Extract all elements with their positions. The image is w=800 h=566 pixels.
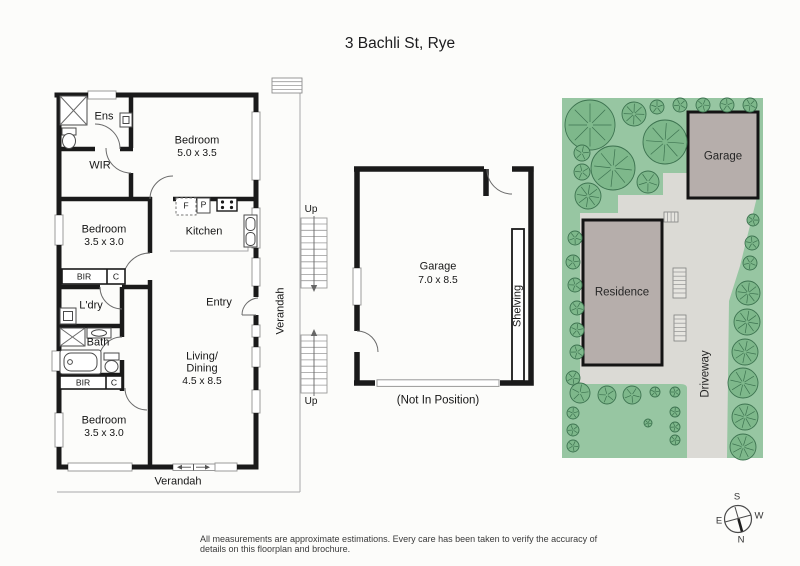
floorplan-page: 3 Bachli St, Rye [0,0,800,566]
tree-icon [570,383,590,403]
room-dims-bedroom1: 5.0 x 3.5 [177,149,217,159]
closet-label-bir1: BIR [77,272,91,281]
tree-icon [732,404,758,430]
site-label-driveway: Driveway [700,350,712,397]
room-label-bedroom3: Bedroom [82,416,127,427]
tree-icon [643,120,687,164]
tree-icon [650,100,664,114]
label-up-top: Up [305,205,318,215]
room-label-living: Living/ [186,352,218,363]
tree-icon [730,434,756,460]
tree-icon [566,255,580,269]
site-steps-2 [673,268,686,298]
tree-icon [732,339,758,365]
room-dims-bedroom2: 3.5 x 3.0 [84,238,124,248]
tree-icon [747,214,759,226]
tree-icon [570,345,584,359]
stairs-upper [301,216,327,292]
tree-icon [650,387,660,397]
label-shelving: Shelving [513,285,524,327]
tree-icon [570,301,584,315]
tree-icon [673,98,687,112]
tree-icon [567,440,579,452]
tree-icon [670,435,680,445]
tree-icon [644,419,652,427]
room-label-dining: Dining [186,364,217,375]
tree-icon [622,102,646,126]
garage-door-opening [377,380,499,387]
room-label-garage: Garage [420,262,457,273]
floorplan-graphic [0,0,800,566]
tree-icon [568,278,582,292]
tree-icon [568,231,582,245]
closet-label-c2: C [111,378,117,387]
tree-icon [734,309,760,335]
room-dims-living: 4.5 x 8.5 [182,377,222,387]
tree-icon [728,368,758,398]
fixture-label-pantry: P [201,201,207,210]
room-dims-bedroom3: 3.5 x 3.0 [84,429,124,439]
sliding-door [173,464,215,471]
compass-west: W [755,511,764,521]
tree-icon [565,100,615,150]
door-arcs [95,124,258,410]
compass-south: S [734,492,740,502]
tree-icon [720,98,734,112]
room-label-entry: Entry [206,298,232,309]
disclaimer-text: All measurements are approximate estimat… [200,534,600,554]
label-up-bottom: Up [305,397,318,407]
fixture-label-fridge: F [183,202,188,211]
tree-icon [745,236,759,250]
label-verandah-side: Verandah [276,287,287,334]
tree-icon [574,145,590,161]
compass-north: N [738,535,745,545]
tree-icon [696,98,710,112]
tree-icon [743,98,757,112]
room-dims-garage: 7.0 x 8.5 [418,276,458,286]
closet-label-c1: C [113,272,119,281]
site-steps-3 [674,315,686,341]
compass-rose [725,506,752,533]
tree-icon [736,281,760,305]
tree-icon [670,387,680,397]
front-steps [272,78,302,93]
tree-icon [575,183,601,209]
tree-icon [743,256,757,270]
tree-icon [637,171,659,193]
closet-label-bir2: BIR [76,378,90,387]
site-label-residence: Residence [595,287,649,299]
tree-icon [567,424,579,436]
tree-icon [670,422,680,432]
compass-east: E [716,516,722,526]
label-verandah-bottom: Verandah [154,477,201,488]
tree-icon [598,386,616,404]
site-label-garage: Garage [704,151,742,163]
tree-icon [574,164,590,180]
tree-icon [591,146,635,190]
tree-icon [670,407,680,417]
room-label-bath: Bath [87,338,110,349]
room-label-bedroom1: Bedroom [175,136,220,147]
stairs-lower [301,329,327,396]
tree-icon [570,323,584,337]
room-label-bedroom2: Bedroom [82,225,127,236]
room-label-laundry: L'dry [79,301,103,312]
room-label-ensuite: Ens [95,112,114,123]
tree-icon [567,407,579,419]
label-not-in-position: (Not In Position) [397,395,479,407]
room-label-wir: WIR [89,161,110,172]
tree-icon [623,386,641,404]
site-steps-1 [664,212,678,222]
room-label-kitchen: Kitchen [186,227,223,238]
